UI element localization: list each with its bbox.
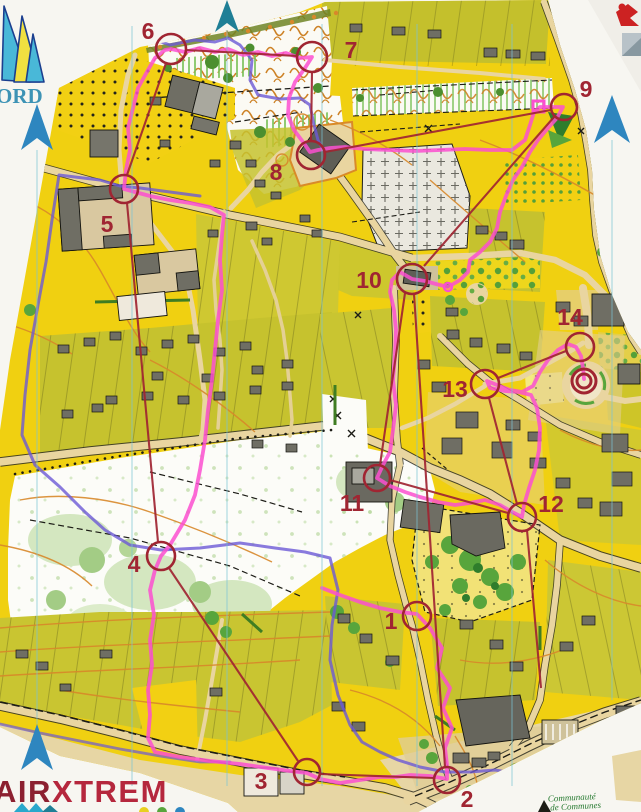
svg-text:3: 3 [255,768,268,794]
svg-text:8: 8 [270,159,283,185]
svg-text:2: 2 [461,786,474,812]
svg-text:9: 9 [580,76,593,102]
svg-text:10: 10 [356,267,382,293]
svg-text:5: 5 [101,211,114,237]
svg-text:4: 4 [128,551,141,577]
svg-text:AIRXTREM: AIRXTREM [0,774,168,809]
svg-text:de Communes: de Communes [550,800,602,812]
svg-text:6: 6 [142,18,155,44]
svg-text:ORD: ORD [0,84,43,108]
svg-text:1: 1 [385,608,398,634]
svg-text:13: 13 [442,376,468,402]
svg-text:12: 12 [538,491,564,517]
svg-text:7: 7 [345,37,358,63]
svg-text:14: 14 [557,304,583,330]
svg-text:11: 11 [340,490,365,516]
